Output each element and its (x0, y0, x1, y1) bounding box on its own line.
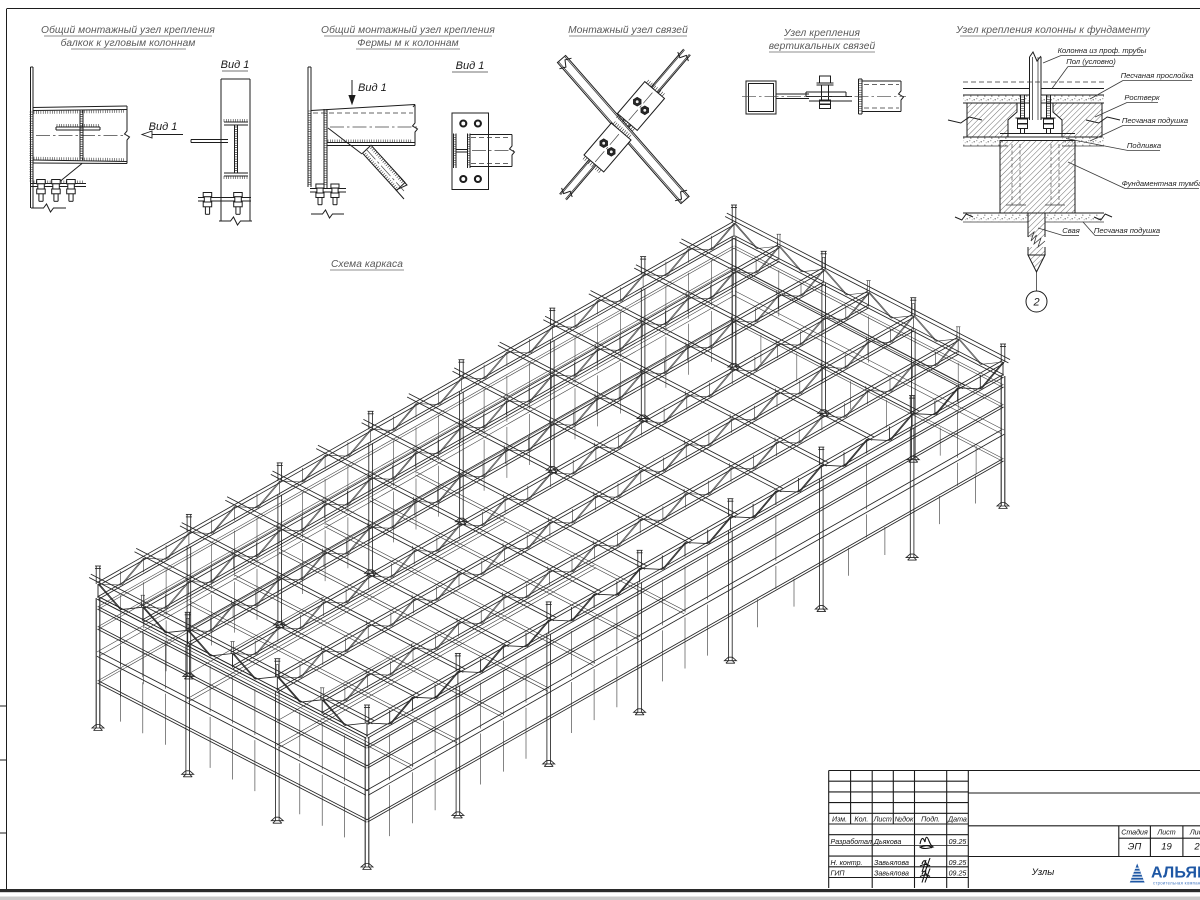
svg-text:Вид 1: Вид 1 (149, 121, 178, 133)
svg-text:19: 19 (1161, 842, 1172, 853)
svg-text:строительная компания: строительная компания (1153, 881, 1200, 886)
svg-text:Лист: Лист (873, 816, 892, 824)
svg-text:Фундаментная тумба: Фундаментная тумба (1122, 179, 1200, 188)
svg-text:Общий монтажный узел крепления: Общий монтажный узел крепления (321, 24, 495, 36)
svg-text:Вид 1: Вид 1 (358, 82, 387, 94)
svg-text:Общий монтажный узел крепления: Общий монтажный узел крепления (41, 24, 215, 36)
svg-text:Вид 1: Вид 1 (221, 59, 250, 71)
svg-text:Завьялова: Завьялова (874, 859, 909, 867)
svg-text:Песчаная подушка: Песчаная подушка (1094, 226, 1160, 235)
svg-text:Узлы: Узлы (1031, 867, 1055, 878)
svg-text:Песчаная подушка: Песчаная подушка (1122, 116, 1188, 125)
svg-text:09.25: 09.25 (949, 859, 967, 867)
svg-text:Узел крепления: Узел крепления (783, 28, 861, 39)
svg-text:ГИП: ГИП (831, 870, 846, 878)
svg-text:Схема каркаса: Схема каркаса (331, 259, 403, 270)
svg-text:Ростверк: Ростверк (1124, 93, 1160, 102)
svg-text:Разработал: Разработал (831, 838, 872, 846)
svg-text:балкок к угловым колоннам: балкок к угловым колоннам (61, 37, 196, 49)
svg-text:Подп.: Подп. (921, 816, 940, 824)
svg-text:Колонна из проф. трубы: Колонна из проф. трубы (1058, 46, 1147, 55)
svg-text:Лист: Лист (1156, 829, 1175, 837)
svg-text:Стадия: Стадия (1121, 829, 1148, 837)
svg-text:09.25: 09.25 (949, 870, 967, 878)
svg-text:Дата: Дата (947, 816, 967, 824)
svg-text:Лис: Лис (1189, 829, 1200, 837)
svg-text:Монтажный узел связей: Монтажный узел связей (568, 25, 688, 36)
svg-text:2: 2 (1032, 297, 1039, 309)
svg-text:Свая: Свая (1062, 226, 1080, 235)
svg-text:№док: №док (894, 816, 914, 824)
svg-text:АЛЬЯНС: АЛЬЯНС (1151, 865, 1200, 882)
svg-text:Вид 1: Вид 1 (456, 60, 485, 72)
svg-text:Узел крепления колонны к фунда: Узел крепления колонны к фундаменту (955, 24, 1151, 36)
svg-text:Песчаная прослойка: Песчаная прослойка (1121, 71, 1194, 80)
svg-text:Н. контр.: Н. контр. (831, 859, 863, 867)
svg-text:Кол.: Кол. (854, 816, 868, 824)
svg-text:09.25: 09.25 (949, 838, 967, 846)
svg-text:Фермы м к колоннам: Фермы м к колоннам (357, 38, 458, 49)
svg-text:Изм.: Изм. (832, 816, 847, 824)
svg-text:Пол (условно): Пол (условно) (1066, 57, 1116, 66)
svg-text:ЭП: ЭП (1128, 842, 1142, 853)
svg-text:вертикальных связей: вертикальных связей (769, 41, 876, 52)
svg-text:Завьялова: Завьялова (874, 870, 909, 878)
svg-text:2: 2 (1193, 842, 1200, 853)
svg-text:Дьякова: Дьякова (873, 838, 901, 846)
svg-text:Подливка: Подливка (1127, 141, 1161, 150)
